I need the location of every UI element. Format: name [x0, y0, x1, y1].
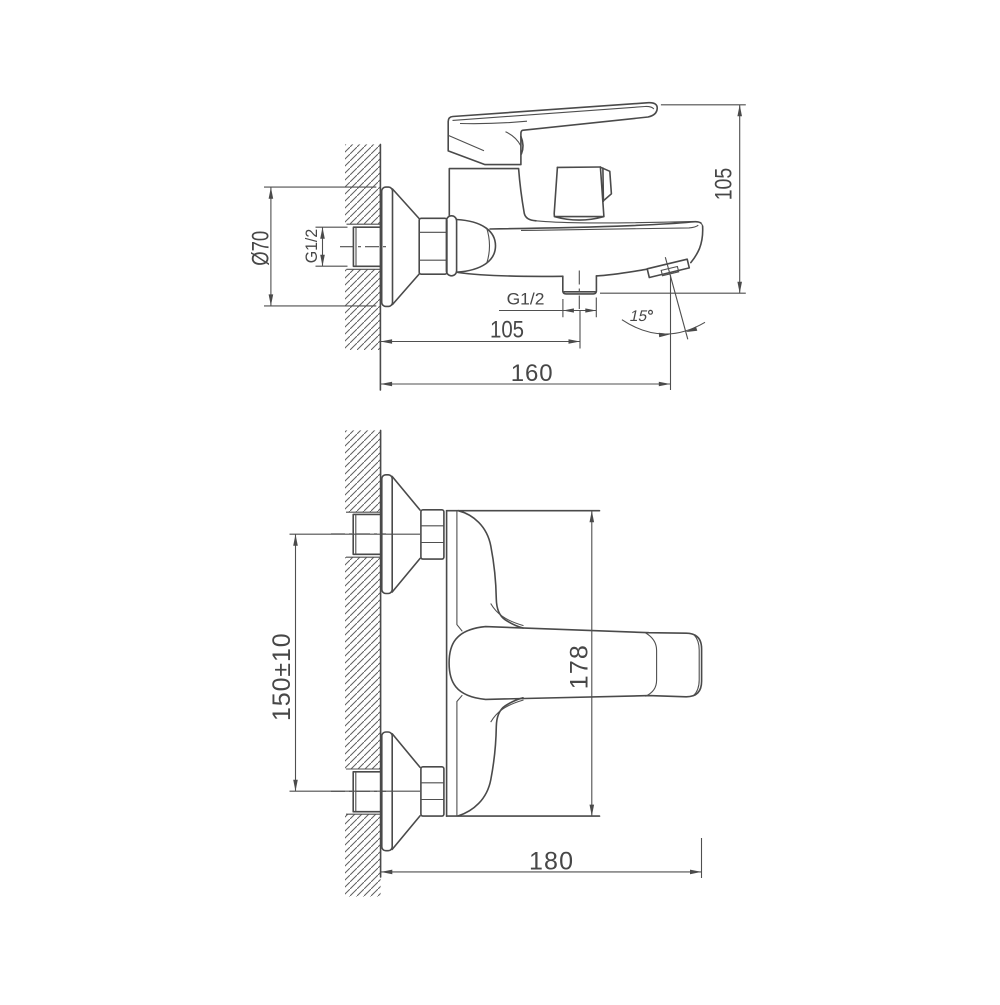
svg-text:180: 180 [529, 847, 573, 875]
svg-text:Ø70: Ø70 [248, 231, 275, 266]
svg-text:178: 178 [566, 645, 594, 689]
svg-text:160: 160 [511, 360, 553, 387]
svg-text:G1/2: G1/2 [507, 290, 545, 309]
svg-text:105: 105 [490, 317, 524, 344]
svg-text:105: 105 [710, 168, 737, 201]
svg-text:150±10: 150±10 [268, 633, 296, 721]
svg-text:G1/2: G1/2 [302, 229, 321, 264]
